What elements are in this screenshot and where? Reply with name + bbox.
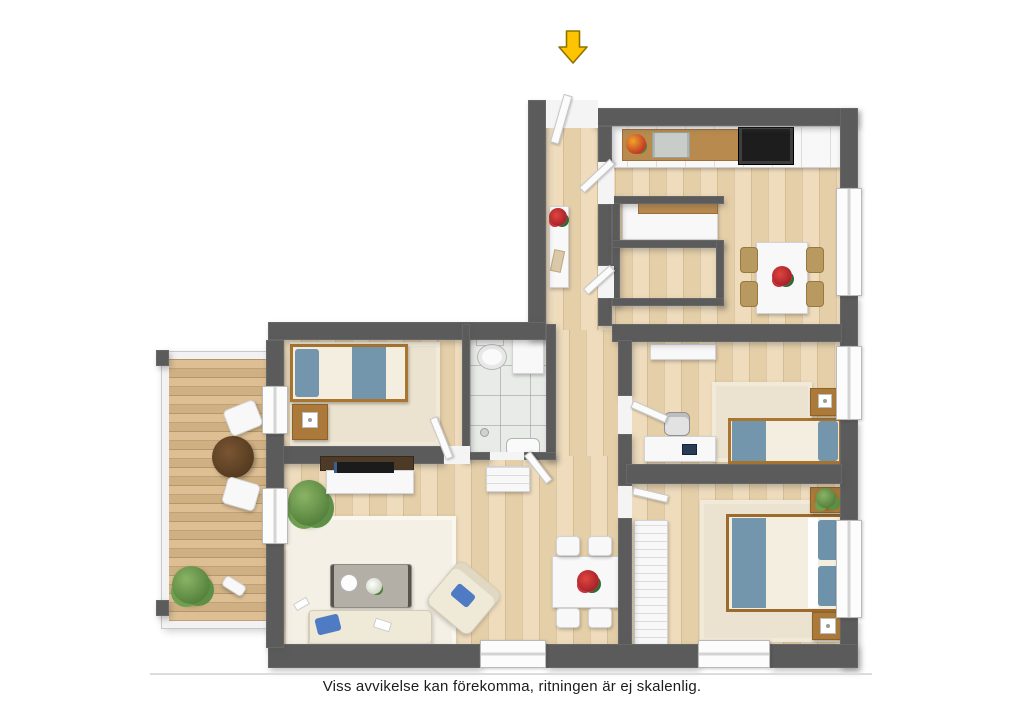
wall-kitchen-top — [592, 108, 858, 126]
wall-bottom-a — [268, 644, 480, 668]
bedroom3-blanket — [732, 518, 766, 608]
kitchen-chair — [740, 281, 758, 307]
wall-right-mid-upper — [840, 296, 858, 346]
bedroom1-window — [262, 386, 288, 434]
living-plant — [288, 480, 330, 526]
bedroom2-door-threshold — [618, 396, 632, 434]
kitchen-chair — [806, 281, 824, 307]
bedroom3-bottom-window — [698, 640, 770, 668]
wall-bottom-c — [770, 644, 858, 668]
dining-window — [480, 640, 546, 668]
laptop — [682, 444, 697, 455]
bedroom2-blanket — [732, 421, 766, 461]
bedroom1-lamp — [302, 412, 318, 428]
wall-hall-kitchen-a — [598, 126, 612, 162]
wall-right-mid — [840, 420, 858, 520]
toilet-bowl — [477, 344, 507, 370]
tv-bench — [326, 470, 414, 494]
wall-hall-left — [528, 100, 546, 340]
dining-chair — [556, 608, 580, 628]
kitchen-chair — [740, 247, 758, 273]
table-flowers — [366, 578, 382, 594]
wall-corridor-right-a — [618, 340, 632, 396]
wall-left-b — [266, 434, 284, 488]
washer-cabinet — [512, 334, 544, 374]
bedroom2-dresser — [650, 344, 716, 360]
wall-corridor-right-c — [618, 518, 632, 650]
wall-bottom-b — [546, 644, 698, 668]
floor-drain — [480, 428, 489, 437]
entry-threshold — [546, 100, 598, 128]
dining-chair — [556, 536, 580, 556]
dining-chair — [588, 536, 612, 556]
cooktop — [738, 127, 794, 165]
bedroom3-plant — [816, 488, 836, 508]
teapot — [340, 574, 358, 592]
bedroom2-desk — [644, 436, 716, 462]
plan-bottom-edge — [150, 673, 872, 675]
floor-plan: Viss avvikelse kan förekomma, ritningen … — [0, 0, 1024, 724]
kitchen-chair — [806, 247, 824, 273]
dining-flowers — [577, 570, 599, 592]
wall-bathroom-right — [546, 324, 556, 460]
kitchen-table-flowers — [772, 266, 792, 286]
entry-arrow-icon — [558, 30, 588, 64]
kitchen-sink — [652, 132, 690, 158]
wall-left-c — [266, 544, 284, 648]
balcony-door — [262, 488, 288, 544]
balcony-post — [156, 350, 169, 366]
wall-exterior-top-left — [268, 322, 546, 340]
balcony-table — [212, 436, 254, 478]
wall-kitchen-right — [840, 108, 858, 188]
wall-bathroom-left — [462, 324, 470, 460]
hall-flowers — [549, 208, 567, 226]
disclaimer-text: Viss avvikelse kan förekomma, ritningen … — [0, 678, 1024, 695]
bathroom-door-threshold — [490, 452, 524, 460]
bedroom2-pillow — [818, 421, 838, 461]
bedroom2-window — [836, 346, 862, 420]
bedroom3-side-window — [836, 520, 862, 618]
dining-chair — [588, 608, 612, 628]
wall-left-a — [266, 340, 284, 386]
bedroom3-door-threshold — [618, 486, 632, 518]
pantry-cabinet-wood-top — [638, 203, 718, 214]
wall-hall-kitchen-c — [598, 298, 612, 326]
wall-bedroom2-bedroom3 — [626, 464, 842, 484]
balcony-plant — [172, 566, 210, 604]
bedroom1-blanket — [352, 347, 386, 399]
kitchen-window — [836, 188, 862, 296]
bedroom3-wardrobe — [634, 520, 668, 646]
balcony-post — [156, 600, 169, 616]
wall-hall-kitchen-b — [598, 204, 612, 266]
bedroom3-lamp — [820, 618, 836, 634]
fruit-bowl — [626, 134, 646, 154]
bedroom1-pillow — [295, 349, 319, 397]
wall-closet-top — [612, 196, 724, 204]
hall-bench — [486, 466, 530, 492]
wall-closet-mid — [612, 240, 724, 248]
wall-closet-right — [716, 240, 724, 306]
wall-closet-bottom — [612, 298, 724, 306]
bedroom2-lamp — [818, 394, 832, 408]
wall-kitchen-bottom — [612, 324, 842, 342]
bedroom3-sheet — [808, 518, 818, 608]
tv — [334, 462, 394, 473]
